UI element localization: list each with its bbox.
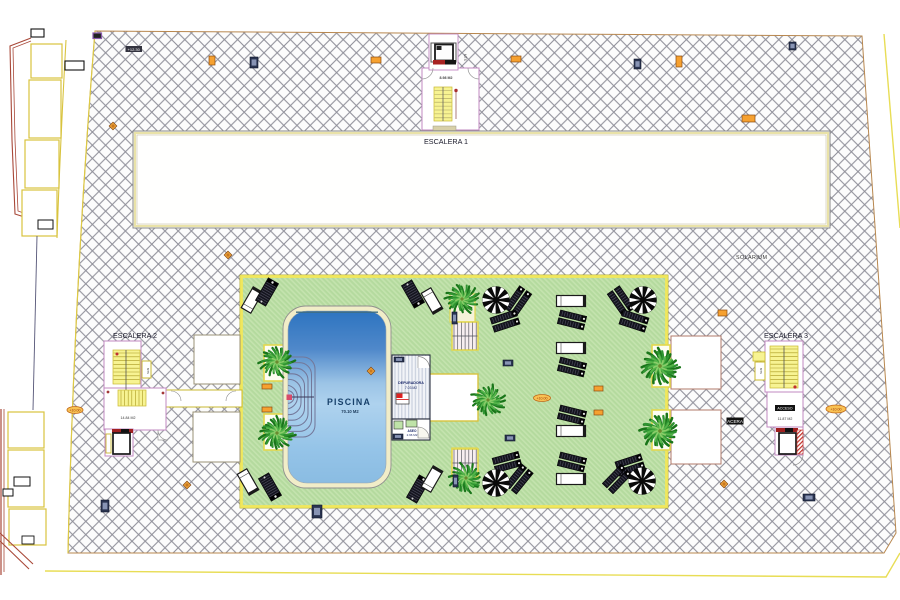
svg-text:7.03 M2: 7.03 M2 (405, 386, 417, 390)
svg-text:14.84 M2: 14.84 M2 (121, 416, 136, 420)
svg-text:+10.00: +10.00 (536, 396, 547, 400)
svg-text:ESCALERA 1: ESCALERA 1 (424, 137, 468, 146)
svg-text:70.10 M2: 70.10 M2 (341, 409, 359, 414)
svg-text:+10.00: +10.00 (830, 407, 841, 411)
svg-text:MTS: MTS (759, 368, 763, 374)
svg-text:MTS: MTS (146, 368, 150, 374)
svg-text:2.96 M2: 2.96 M2 (407, 433, 418, 437)
svg-text:+12.30: +12.30 (128, 47, 141, 52)
svg-text:+10.00: +10.00 (69, 408, 80, 412)
svg-text:PISCINA: PISCINA (327, 397, 371, 407)
svg-text:ESCALERA 2: ESCALERA 2 (113, 331, 157, 340)
svg-text:11.87 M2: 11.87 M2 (778, 417, 793, 421)
svg-text:DEPURADORA: DEPURADORA (398, 381, 424, 385)
svg-text:ESCALERA 3: ESCALERA 3 (764, 331, 808, 340)
svg-text:MTS: MTS (463, 54, 467, 61)
svg-text:SOLARIUM: SOLARIUM (736, 255, 767, 261)
svg-text:ACERA: ACERA (727, 419, 744, 424)
svg-text:ACCESO: ACCESO (777, 406, 792, 410)
svg-text:8.98 M2: 8.98 M2 (440, 76, 453, 80)
